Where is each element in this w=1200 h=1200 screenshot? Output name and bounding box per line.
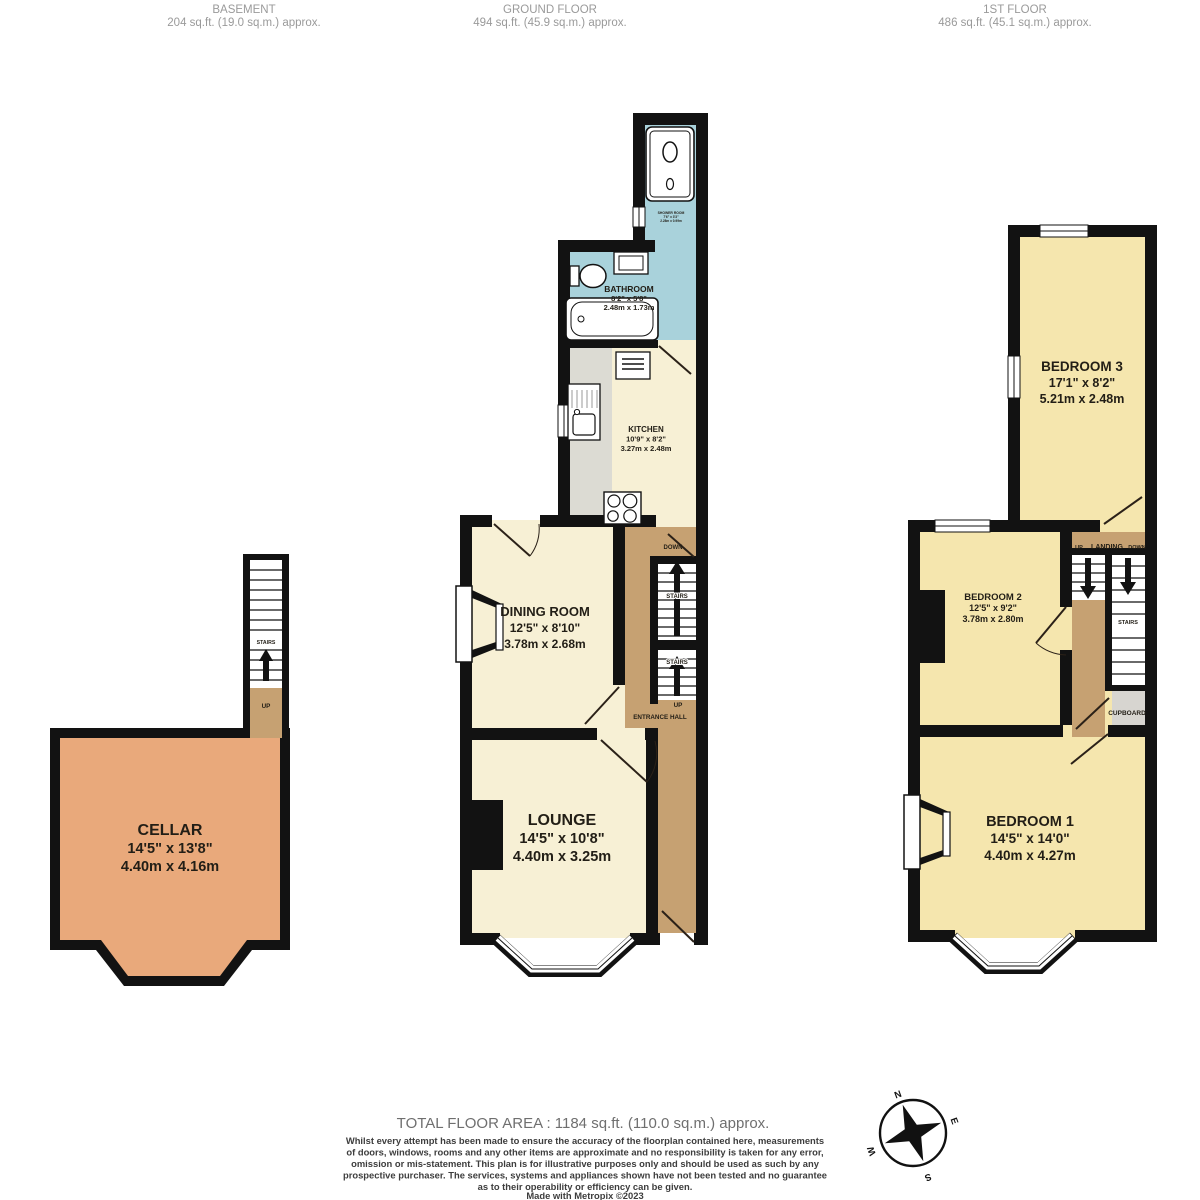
up-label: UP	[262, 703, 271, 710]
bathroom-name: BATHROOM	[604, 284, 653, 294]
cellar-imperial: 14'5" x 13'8"	[127, 841, 212, 857]
basement-title: BASEMENT	[212, 4, 275, 16]
up-label: UP	[674, 702, 683, 709]
bedroom2-window	[935, 520, 990, 532]
bedroom2-chimney-breast	[920, 590, 945, 663]
floorplan-page: BASEMENT 204 sq.ft. (19.0 sq.m.) approx.…	[0, 0, 1200, 1200]
hob	[604, 492, 641, 524]
bedroom2-metric: 3.78m x 2.80m	[962, 614, 1023, 624]
cellar-name: CELLAR	[138, 822, 203, 839]
shower-tray	[646, 127, 694, 201]
shower-metric: 2.28m x 0.99m	[660, 219, 682, 223]
stairs-label: STAIRS	[1118, 620, 1138, 626]
bedroom1-imperial: 14'5" x 14'0"	[990, 831, 1069, 846]
landing-label: LANDING	[1091, 544, 1123, 551]
basement-stair-landing	[250, 688, 282, 738]
bedroom3-imperial: 17'1" x 8'2"	[1049, 376, 1116, 390]
first-floor-plan: STAIRS	[904, 225, 1157, 968]
bedroom3-metric: 5.21m x 2.48m	[1040, 392, 1125, 406]
front-door-opening	[660, 933, 694, 945]
bathroom-imperial: 8'2" x 5'8"	[611, 294, 647, 303]
compass-rose: N E S W	[865, 1089, 960, 1183]
compass-east: E	[948, 1116, 961, 1126]
cellar-metric: 4.40m x 4.16m	[121, 859, 219, 875]
basement-area: 204 sq.ft. (19.0 sq.m.) approx.	[167, 17, 320, 29]
first-area: 486 sq.ft. (45.1 sq.m.) approx.	[938, 17, 1091, 29]
stairs-label: STAIRS	[666, 660, 688, 666]
kitchen-name: KITCHEN	[628, 425, 664, 434]
toilet	[570, 265, 606, 288]
lounge-imperial: 14'5" x 10'8"	[519, 831, 604, 847]
lounge-name: LOUNGE	[528, 812, 597, 829]
lounge-chimney-breast	[472, 800, 503, 870]
disclaimer-line: of doors, windows, rooms and any other i…	[346, 1147, 823, 1158]
stairs-label: STAIRS	[257, 640, 276, 646]
cupboard-label: CUPBOARD	[1108, 710, 1146, 717]
bedroom3-top-window	[1040, 225, 1088, 237]
shower-window	[633, 207, 645, 227]
dining-name: DINING ROOM	[500, 604, 590, 619]
ground-floor-plan: STAIRS STAIRS	[456, 113, 708, 971]
bedroom3-name: BEDROOM 3	[1041, 359, 1123, 374]
lounge-bay-window	[496, 938, 634, 971]
basin	[614, 252, 648, 274]
bedroom3-side-window	[1008, 356, 1020, 398]
kitchen-imperial: 10'9" x 8'2"	[626, 435, 666, 444]
basement-plan: STAIRS UP CELLAR 14'5" x 13'8" 4.40m x 4…	[50, 554, 290, 986]
compass-north: N	[893, 1089, 903, 1102]
bedroom1-name: BEDROOM 1	[986, 814, 1074, 830]
cupboard-floor	[1112, 691, 1145, 725]
bedroom2-name: BEDROOM 2	[964, 592, 1022, 603]
total-floor-area: TOTAL FLOOR AREA : 1184 sq.ft. (110.0 sq…	[397, 1115, 770, 1132]
entrance-hall-label: ENTRANCE HALL	[633, 714, 687, 721]
kitchen-sink	[568, 384, 600, 440]
metropix-credit: Made with Metropix ©2023	[526, 1190, 643, 1200]
disclaimer-line: Whilst every attempt has been made to en…	[346, 1135, 824, 1146]
down-label: DOWN	[664, 545, 683, 551]
stairs-label: STAIRS	[666, 594, 688, 600]
dining-metric: 3.78m x 2.68m	[504, 637, 585, 651]
down-label: DOWN	[1128, 545, 1145, 551]
ground-stairwell: STAIRS STAIRS	[650, 556, 696, 704]
ground-title: GROUND FLOOR	[503, 4, 597, 16]
footer: TOTAL FLOOR AREA : 1184 sq.ft. (110.0 sq…	[343, 1115, 827, 1200]
bedroom1-bay-window	[953, 936, 1074, 968]
up-label: UP	[1075, 545, 1083, 551]
bathroom-metric: 2.48m x 1.73m	[604, 303, 655, 312]
lounge-metric: 4.40m x 3.25m	[513, 849, 611, 865]
floor-titles: BASEMENT 204 sq.ft. (19.0 sq.m.) approx.…	[167, 4, 1091, 29]
landing-strip	[1072, 690, 1105, 737]
first-title: 1ST FLOOR	[983, 4, 1047, 16]
bedroom1-metric: 4.40m x 4.27m	[984, 848, 1076, 863]
floorplan-drawing: BASEMENT 204 sq.ft. (19.0 sq.m.) approx.…	[0, 0, 1200, 1200]
up-arrow-shaft	[263, 661, 269, 681]
bedroom2-imperial: 12'5" x 9'2"	[969, 603, 1017, 613]
oven	[616, 352, 650, 379]
disclaimer-line: prospective purchaser. The services, sys…	[343, 1170, 827, 1181]
dining-imperial: 12'5" x 8'10"	[510, 621, 580, 635]
ground-area: 494 sq.ft. (45.9 sq.m.) approx.	[473, 17, 626, 29]
kitchen-metric: 3.27m x 2.48m	[621, 444, 672, 453]
compass-west: W	[865, 1145, 878, 1157]
disclaimer-line: omission or mis-statement. This plan is …	[351, 1158, 820, 1169]
compass-south: S	[923, 1171, 933, 1184]
